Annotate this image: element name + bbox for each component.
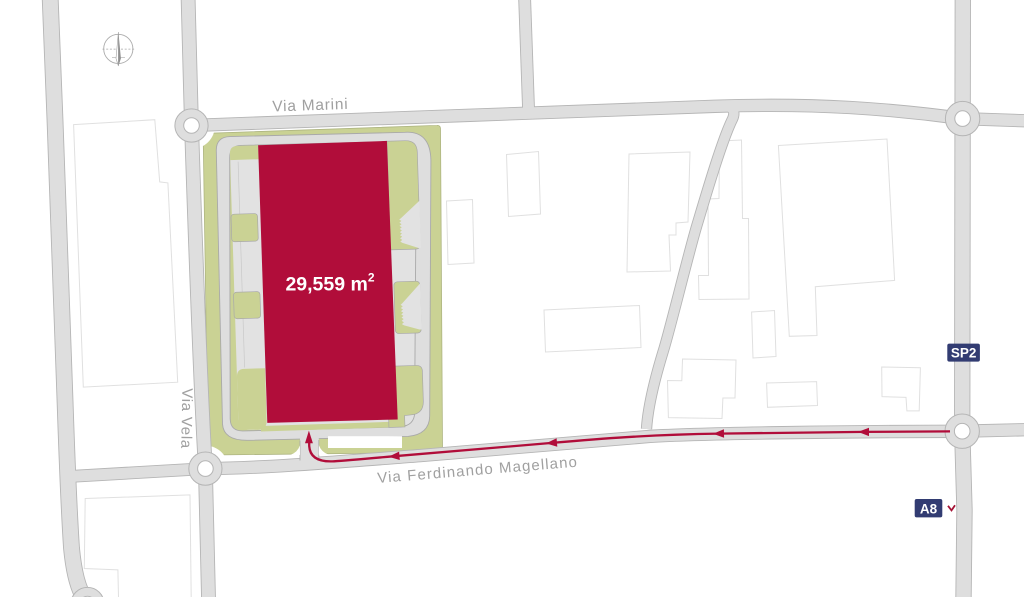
svg-text:Via Marini: Via Marini bbox=[272, 96, 349, 116]
svg-text:Via Vela: Via Vela bbox=[177, 388, 195, 449]
svg-text:A8: A8 bbox=[920, 501, 938, 516]
svg-text:SP2: SP2 bbox=[951, 345, 977, 360]
svg-text:29,559 m2: 29,559 m2 bbox=[285, 271, 374, 296]
